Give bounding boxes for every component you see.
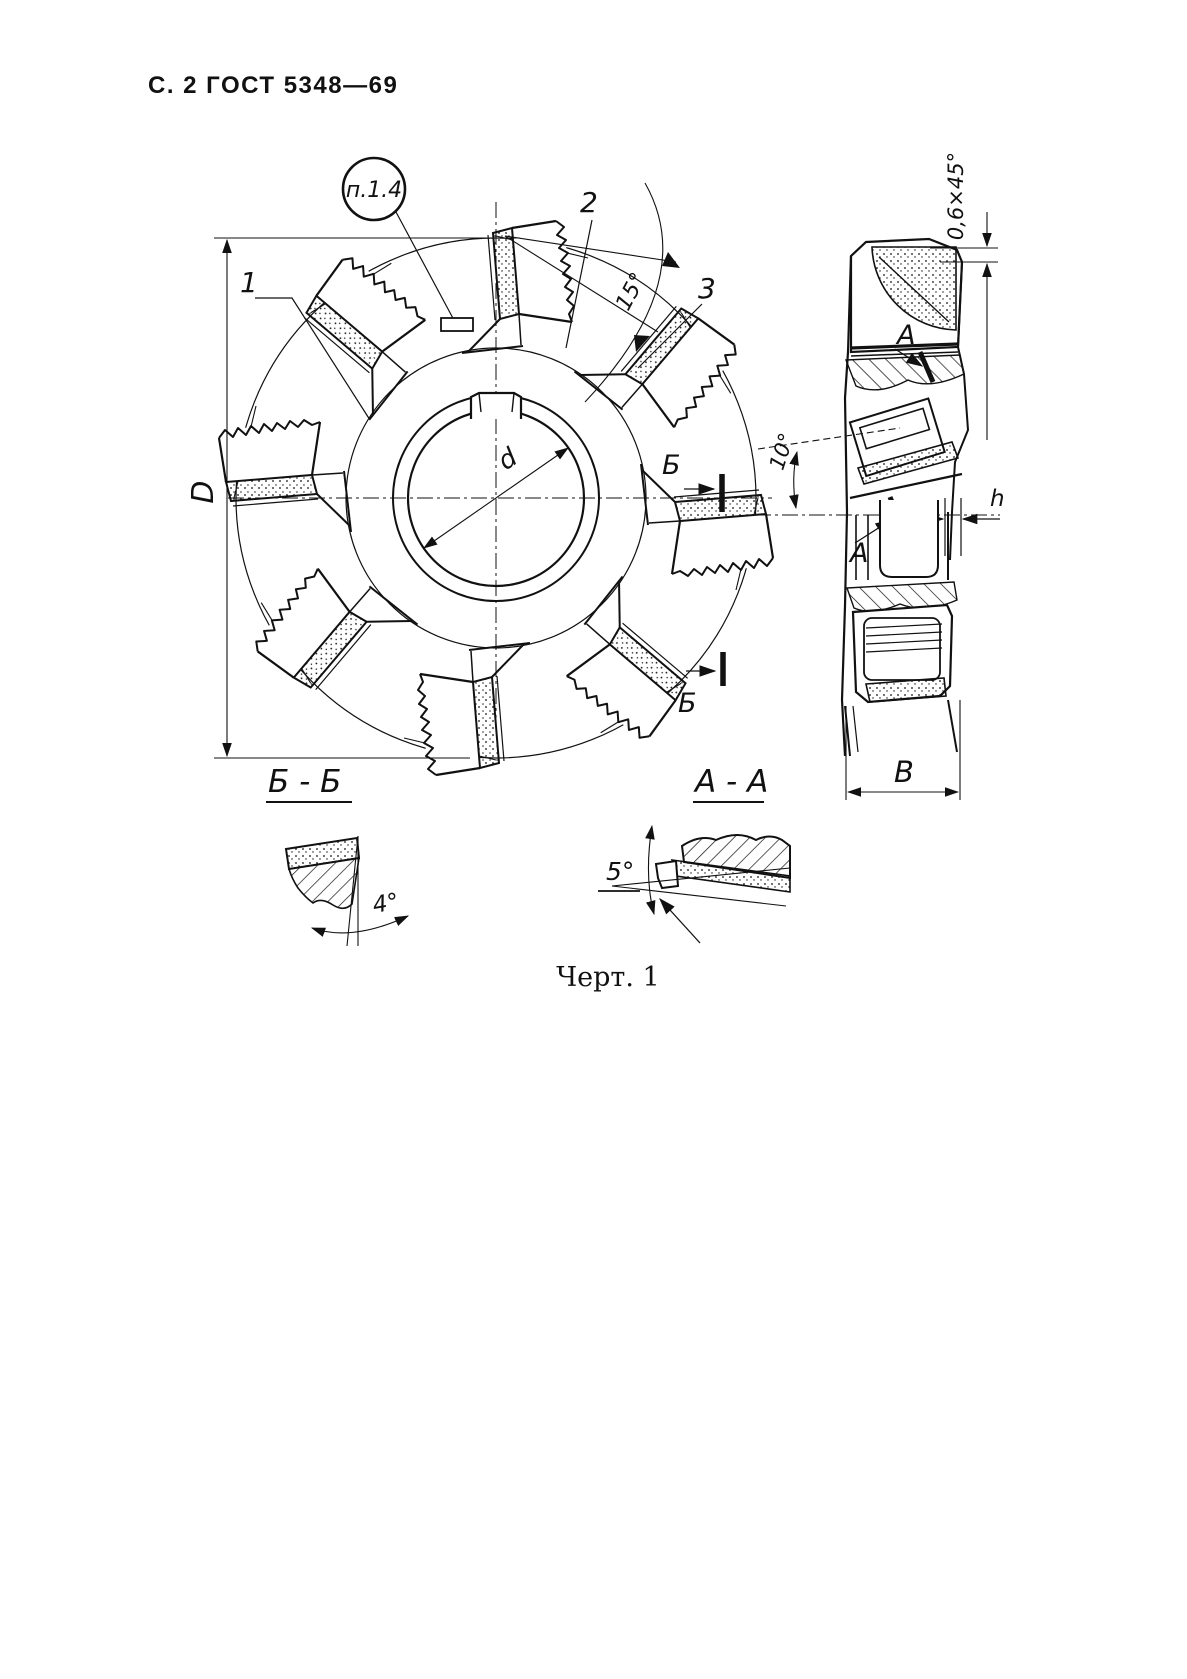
body-band-1 <box>846 355 964 390</box>
section-AA-title: А - А <box>693 764 768 800</box>
dimension-B: В <box>846 700 960 800</box>
plane-A-text: А <box>848 538 868 569</box>
angle-arc <box>648 826 654 914</box>
tooth-315 <box>276 237 458 419</box>
item-3-text: 3 <box>698 272 716 305</box>
tooth-270 <box>219 406 351 532</box>
tooth-45 <box>574 278 756 460</box>
angle-5-text: 5° <box>606 857 634 886</box>
tooth-225 <box>235 535 417 717</box>
item-2-label: 2 <box>566 186 598 348</box>
tooth-90 <box>641 464 773 590</box>
figure-caption: Черт. 1 <box>556 962 659 993</box>
angle-line-lower <box>612 886 786 906</box>
section-B-upper-text: Б <box>662 450 681 481</box>
side-view: А 0,6×45° <box>755 152 1005 800</box>
body-line <box>948 700 957 752</box>
section-AA-detail: А - А 5° <box>598 764 790 943</box>
side-left-edge <box>842 256 851 756</box>
pointer-arrow <box>660 899 700 943</box>
angle-15-text: 15° <box>611 269 651 315</box>
section-B-lower-text: Б <box>678 688 697 719</box>
side-lower-tooth <box>853 605 952 702</box>
dim-D-text: D <box>186 480 221 503</box>
tooth-135 <box>533 576 715 758</box>
clamp-slot <box>880 500 938 577</box>
gost-drawing-page: С. 2 ГОСТ 5348—69 <box>0 0 1187 1679</box>
dim-h-text: h <box>990 486 1005 512</box>
callout-text: п.1.4 <box>346 178 402 203</box>
angle-10-text: 10° <box>765 430 799 473</box>
angle-4-text: 4° <box>371 889 401 919</box>
figure-1-drawing: п.1.4 1 2 3 15° <box>0 0 1187 1679</box>
chamfer-dim-text: 0,6×45° <box>944 152 968 240</box>
tooth-180 <box>404 643 530 775</box>
front-view: п.1.4 1 2 3 15° <box>186 158 773 775</box>
angle-arc <box>312 916 408 933</box>
dim-B-text: В <box>894 755 914 789</box>
dim-d-text: d <box>493 442 524 476</box>
section-AA-tip <box>656 861 678 888</box>
item-2-text: 2 <box>580 186 598 219</box>
item-1-text: 1 <box>240 266 258 299</box>
section-BB-title: Б - Б <box>268 764 341 800</box>
body-line <box>853 706 858 752</box>
section-BB-detail: Б - Б 4° <box>266 764 408 946</box>
